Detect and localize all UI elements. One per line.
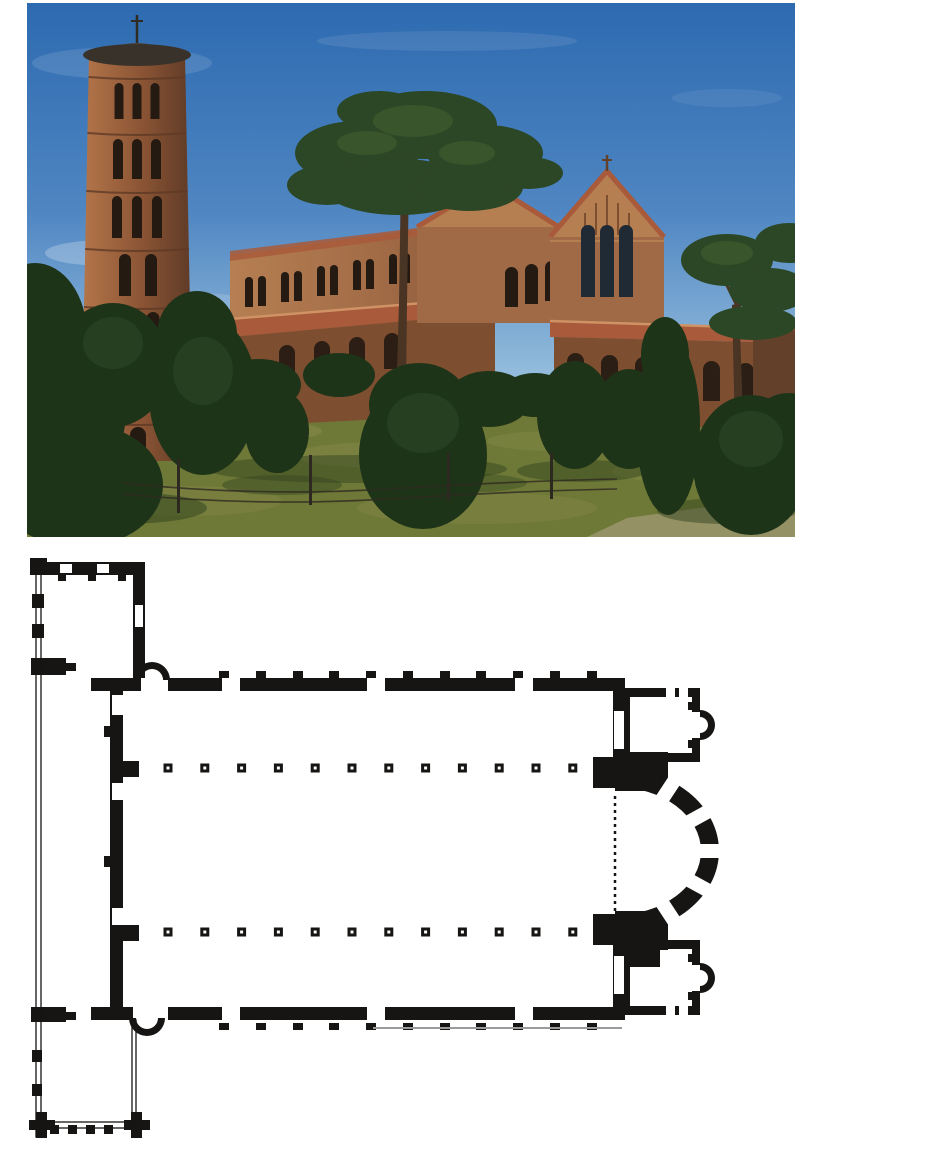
thin-wall — [132, 1020, 136, 1122]
fence-post — [447, 453, 450, 501]
flank-window — [317, 266, 325, 296]
chapel-apse — [700, 963, 715, 993]
column-center-dot — [167, 767, 170, 770]
wall — [104, 1125, 113, 1134]
wall-opening — [679, 688, 688, 697]
bush-highlight — [173, 337, 233, 405]
wall — [256, 1023, 266, 1030]
column-center-dot — [314, 931, 317, 934]
column-center-dot — [498, 767, 501, 770]
wall-opening — [112, 908, 123, 925]
tower-window — [113, 139, 123, 179]
tower-window — [119, 254, 131, 296]
wall — [88, 575, 96, 581]
column-center-dot — [203, 931, 206, 934]
column-center-dot — [314, 767, 317, 770]
flank-window — [353, 260, 361, 290]
facade-window — [600, 225, 614, 297]
bush-highlight — [387, 393, 459, 453]
clerestory-window — [505, 267, 518, 307]
wall — [123, 761, 139, 777]
wall — [628, 943, 660, 967]
wall-opening — [614, 711, 624, 749]
basilica-floor-plan-svg — [28, 556, 728, 1146]
column-center-dot — [387, 767, 390, 770]
pine-canopy — [287, 165, 367, 205]
wall-opening — [141, 678, 163, 691]
column-center-dot — [167, 931, 170, 934]
wall — [104, 856, 110, 867]
fence-post — [177, 459, 180, 513]
wall-opening — [692, 965, 700, 991]
column-center-dot — [277, 931, 280, 934]
wall-opening — [60, 564, 72, 573]
bush-highlight — [719, 411, 783, 467]
wall — [68, 1125, 77, 1134]
wall — [58, 575, 66, 581]
column-center-dot — [203, 767, 206, 770]
basilica-photo — [27, 3, 795, 537]
flank-window — [245, 277, 253, 307]
wall — [32, 624, 44, 638]
facade-window — [619, 225, 633, 297]
wall-opening — [666, 688, 675, 697]
wall-opening — [222, 1007, 240, 1020]
bush — [501, 373, 569, 417]
column-center-dot — [535, 931, 538, 934]
wall-opening — [97, 564, 109, 573]
column-center-dot — [277, 767, 280, 770]
wall — [66, 1012, 76, 1020]
flank-window — [389, 254, 397, 284]
plan-niches — [129, 662, 170, 1036]
column-center-dot — [240, 931, 243, 934]
wall — [91, 1007, 133, 1020]
flank-window — [294, 271, 302, 301]
wall — [476, 671, 486, 678]
cloud — [317, 31, 577, 51]
wall-opening — [112, 695, 123, 715]
wall — [104, 726, 110, 737]
column-center-dot — [387, 931, 390, 934]
wall-opening — [515, 678, 533, 691]
wall-opening — [367, 678, 385, 691]
tower-window — [133, 83, 142, 119]
flank-window — [258, 276, 266, 306]
flank-window — [366, 259, 374, 289]
cloud — [672, 89, 782, 107]
wall — [403, 671, 413, 678]
facade-triple-window — [581, 225, 633, 297]
wall — [123, 925, 139, 941]
wall — [219, 1023, 229, 1030]
wall — [329, 671, 339, 678]
clerestory-window — [525, 264, 538, 304]
wall-niche — [129, 1018, 165, 1036]
wall — [622, 1006, 700, 1015]
wall-opening — [135, 605, 143, 627]
plan-wall-openings — [60, 564, 700, 1020]
plan-colonnades — [164, 764, 578, 937]
wall — [66, 663, 76, 671]
column-center-dot — [424, 931, 427, 934]
column-center-dot — [571, 767, 574, 770]
wall-opening — [692, 712, 700, 738]
wall-opening — [136, 1007, 158, 1018]
bush-highlight — [83, 317, 143, 369]
pine-highlight — [439, 141, 495, 165]
wall — [587, 671, 597, 678]
flank-window — [281, 272, 289, 302]
wall — [440, 671, 450, 678]
column-center-dot — [424, 767, 427, 770]
pine-canopy — [709, 306, 795, 340]
wall — [86, 1125, 95, 1134]
wall-opening — [112, 783, 123, 800]
fence-post — [550, 453, 553, 499]
wall-opening — [666, 1006, 675, 1015]
facade-window — [581, 225, 595, 297]
tower-window — [151, 139, 161, 179]
wall — [293, 671, 303, 678]
wall — [293, 1023, 303, 1030]
basilica-photo-svg — [27, 3, 795, 537]
column-center-dot — [461, 767, 464, 770]
column-center-dot — [498, 931, 501, 934]
wall — [622, 688, 700, 697]
bush — [303, 353, 375, 397]
wall — [329, 1023, 339, 1030]
basilica-floor-plan — [28, 556, 728, 1146]
tower-window — [145, 254, 157, 296]
wall — [30, 558, 47, 575]
tower-window — [132, 196, 142, 238]
campanile-cap — [83, 44, 191, 66]
pine-highlight — [701, 241, 753, 265]
column-center-dot — [240, 767, 243, 770]
flank-window — [330, 265, 338, 295]
wall — [513, 671, 523, 678]
column-center-dot — [535, 767, 538, 770]
column-center-dot — [351, 931, 354, 934]
wall — [688, 740, 700, 748]
wall — [688, 702, 700, 710]
wall-opening — [367, 1007, 385, 1020]
tower-window — [151, 83, 160, 119]
wall — [688, 954, 700, 962]
tower-window — [115, 83, 124, 119]
pine-highlight — [373, 105, 453, 137]
column-center-dot — [461, 931, 464, 934]
chapel-apse — [700, 710, 715, 740]
wall-opening — [515, 1007, 533, 1020]
wall-opening — [614, 956, 624, 994]
wall — [256, 671, 266, 678]
pine-canopy — [495, 157, 563, 189]
fence-post — [309, 455, 312, 505]
wall — [32, 594, 44, 608]
wall — [366, 671, 376, 678]
column-center-dot — [351, 767, 354, 770]
wall — [688, 992, 700, 1000]
tower-window — [132, 139, 142, 179]
wall — [550, 671, 560, 678]
tower-window — [112, 196, 122, 238]
wall-opening — [222, 678, 240, 691]
plan-walls — [29, 558, 700, 1138]
wall — [219, 671, 229, 678]
porch-arch — [703, 361, 720, 401]
wall — [110, 678, 123, 1020]
wall — [118, 575, 126, 581]
wall-opening — [679, 1006, 688, 1015]
tower-window — [152, 196, 162, 238]
wall — [35, 562, 145, 575]
column-center-dot — [571, 931, 574, 934]
bush — [641, 317, 689, 393]
pine-highlight — [337, 131, 397, 155]
